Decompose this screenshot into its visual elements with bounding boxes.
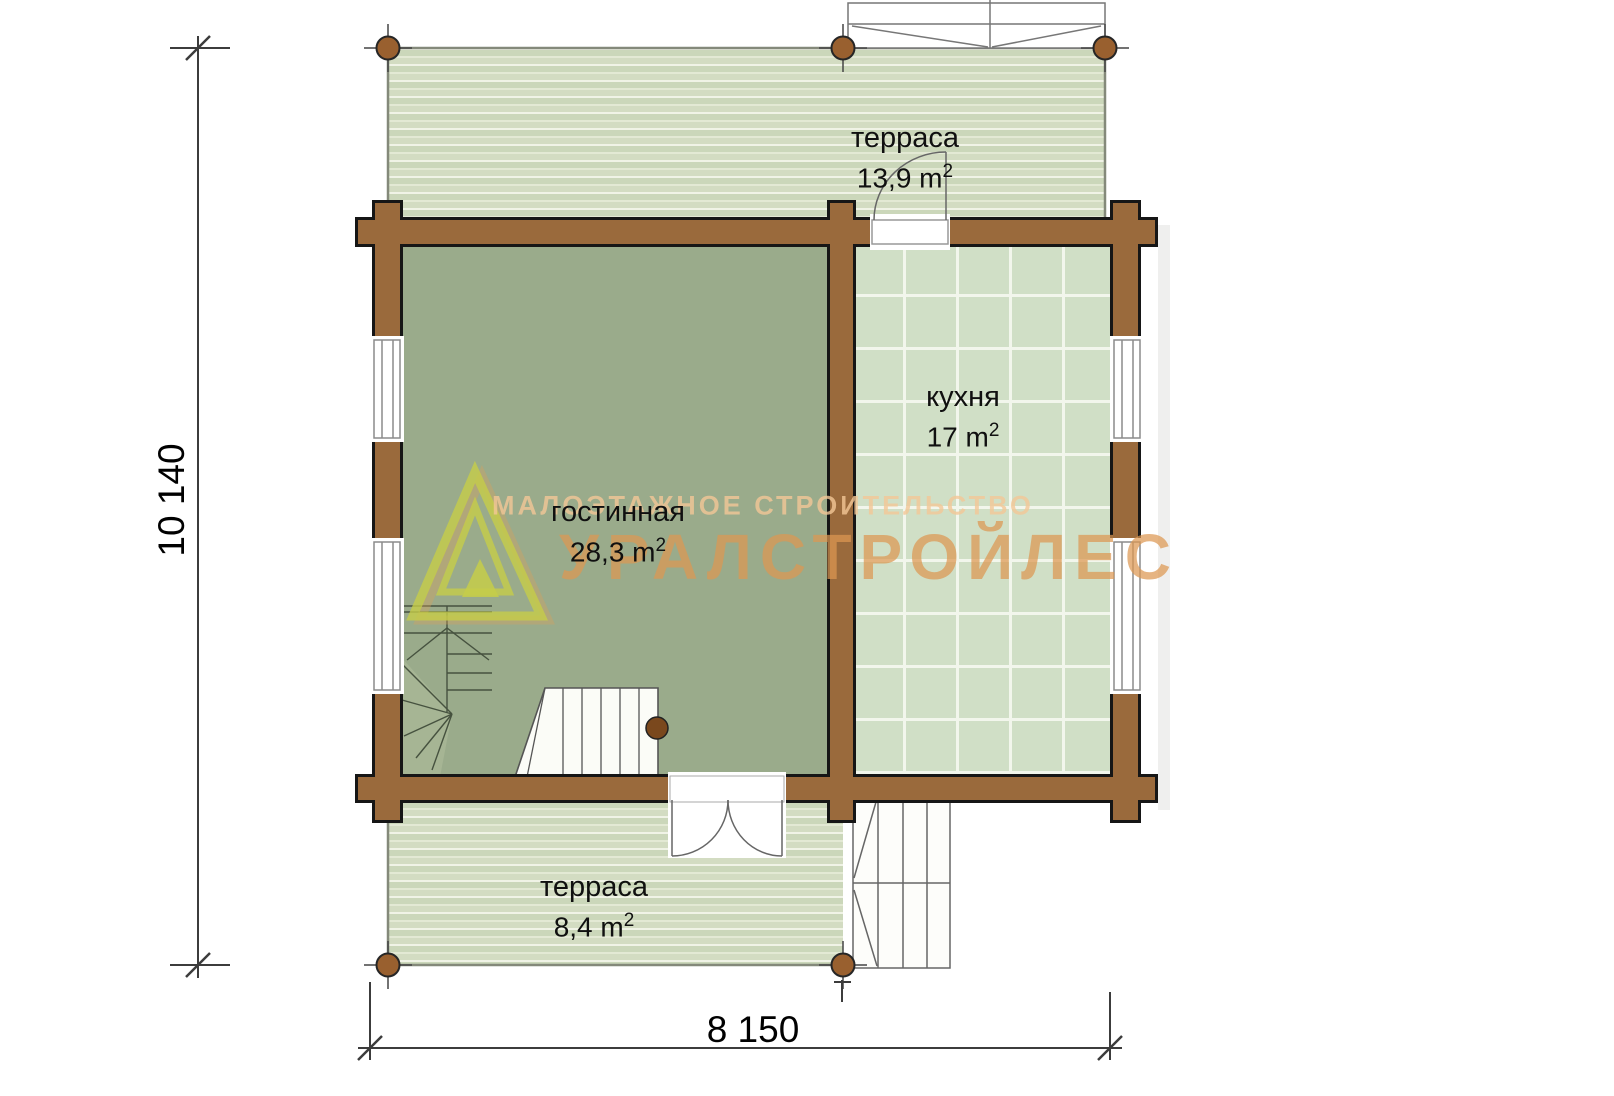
wall-shadow — [1158, 225, 1170, 810]
room-area: 28,3 m2 — [551, 529, 685, 568]
dimension-height-label: 10 140 — [151, 443, 193, 556]
room-label-living: гостинная 28,3 m2 — [551, 496, 685, 568]
room-name: кухня — [926, 381, 1000, 414]
floor-plan-canvas: МАЛОЭТАЖНОЕ СТРОИТЕЛЬСТВО УРАЛСТРОЙЛЕС т… — [0, 0, 1614, 1096]
door-bottom — [668, 772, 786, 858]
window-right-1 — [1110, 336, 1144, 442]
room-label-kitchen: кухня 17 m2 — [926, 381, 1000, 453]
newel-post-icon — [646, 717, 668, 739]
room-area: 17 m2 — [926, 414, 1000, 453]
room-area: 13,9 m2 — [851, 155, 959, 194]
logo-triangle-icon — [398, 458, 558, 626]
room-label-terrace-bottom: терраса 8,4 m2 — [540, 871, 648, 943]
room-name: терраса — [540, 871, 648, 904]
room-label-terrace-top: терраса 13,9 m2 — [851, 122, 959, 194]
top-terrace-deck — [388, 48, 1105, 220]
window-left-1 — [370, 336, 404, 442]
dimension-width-label: 8 150 — [707, 1009, 800, 1051]
bottom-entry-steps-icon — [853, 800, 950, 968]
room-name: терраса — [851, 122, 959, 155]
room-name: гостинная — [551, 496, 685, 529]
room-area: 8,4 m2 — [540, 904, 648, 943]
top-entry-steps-icon — [848, 0, 1105, 48]
